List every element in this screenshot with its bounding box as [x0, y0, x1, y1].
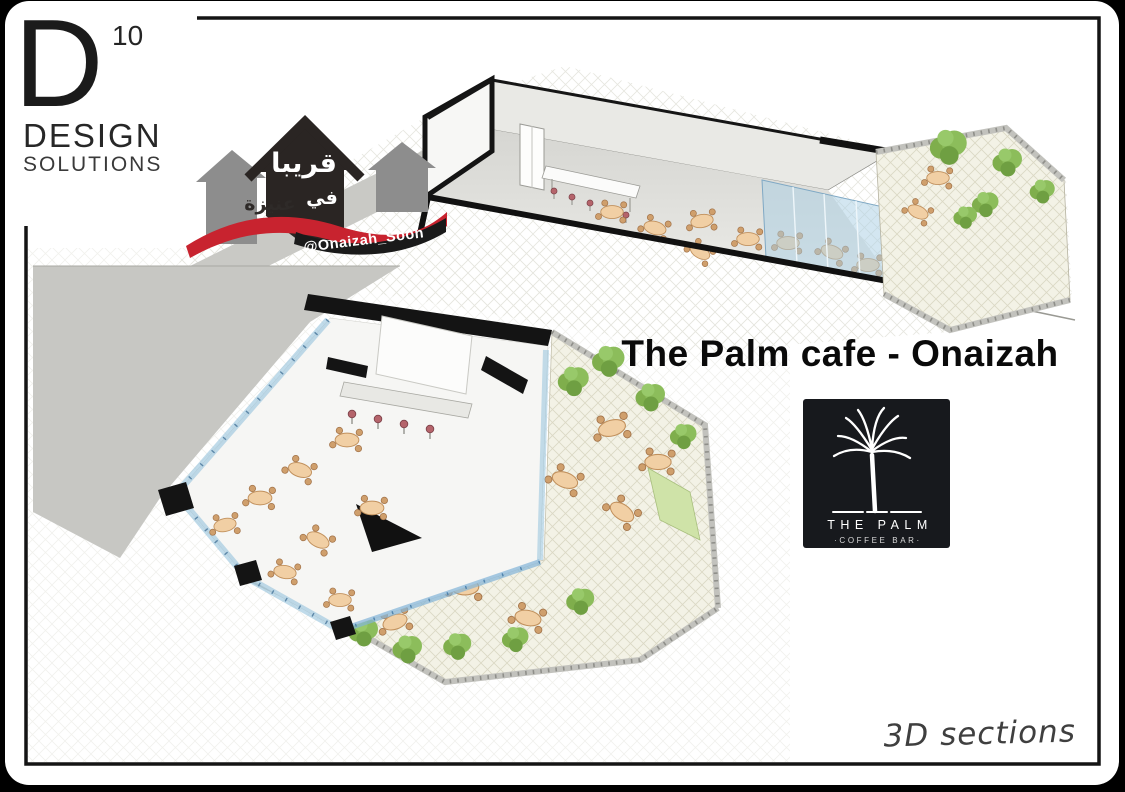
- palm-logo-name: THE PALM: [827, 518, 933, 532]
- palm-logo-tagline: ·COFFEE BAR·: [834, 536, 922, 545]
- d10-letter: D: [14, 0, 104, 133]
- d10-superscript: 10: [112, 20, 143, 51]
- presentation-slide: D 10 DESIGN SOLUTIONS قريبا في عنيزة @On…: [0, 0, 1125, 792]
- slide-graphics: D 10 DESIGN SOLUTIONS قريبا في عنيزة @On…: [0, 0, 1125, 792]
- d10-line2: SOLUTIONS: [23, 153, 162, 176]
- arabic-in-text: في: [306, 187, 338, 209]
- arabic-soon-text: قريبا: [271, 148, 337, 179]
- arabic-onaizah-text: عنيزة: [244, 193, 296, 215]
- caption-3d-sections: 3D sections: [883, 713, 1076, 754]
- d10-line1: DESIGN: [23, 117, 162, 154]
- palm-coffee-bar-logo: THE PALM ·COFFEE BAR·: [803, 399, 950, 548]
- slide-title: The Palm cafe - Onaizah: [621, 333, 1058, 374]
